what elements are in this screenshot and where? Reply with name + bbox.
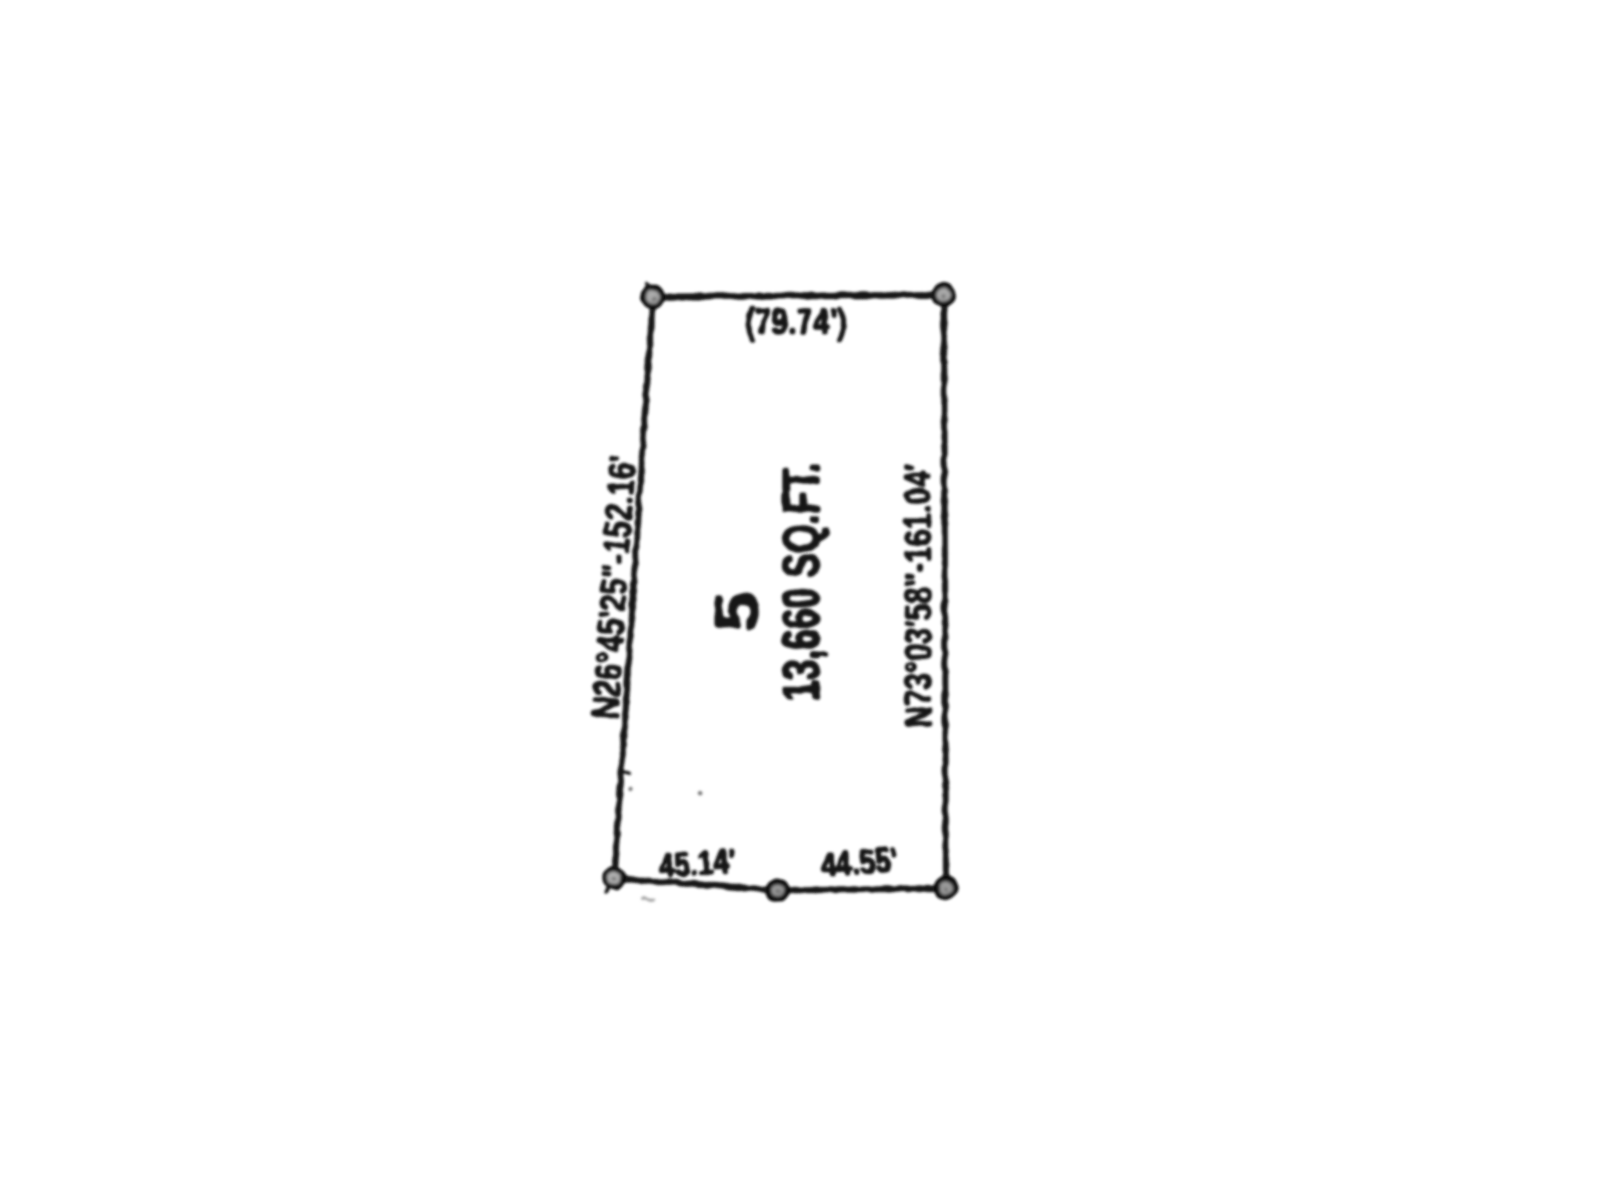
- svg-text:45.14': 45.14': [657, 841, 736, 884]
- svg-text:(79.74'): (79.74'): [744, 301, 846, 341]
- svg-text:13,660 SQ.FT.: 13,660 SQ.FT.: [771, 462, 830, 701]
- svg-text:N73°03'58"-161.04': N73°03'58"-161.04': [896, 463, 939, 727]
- svg-text:5: 5: [702, 591, 770, 630]
- svg-text:44.55': 44.55': [819, 840, 898, 883]
